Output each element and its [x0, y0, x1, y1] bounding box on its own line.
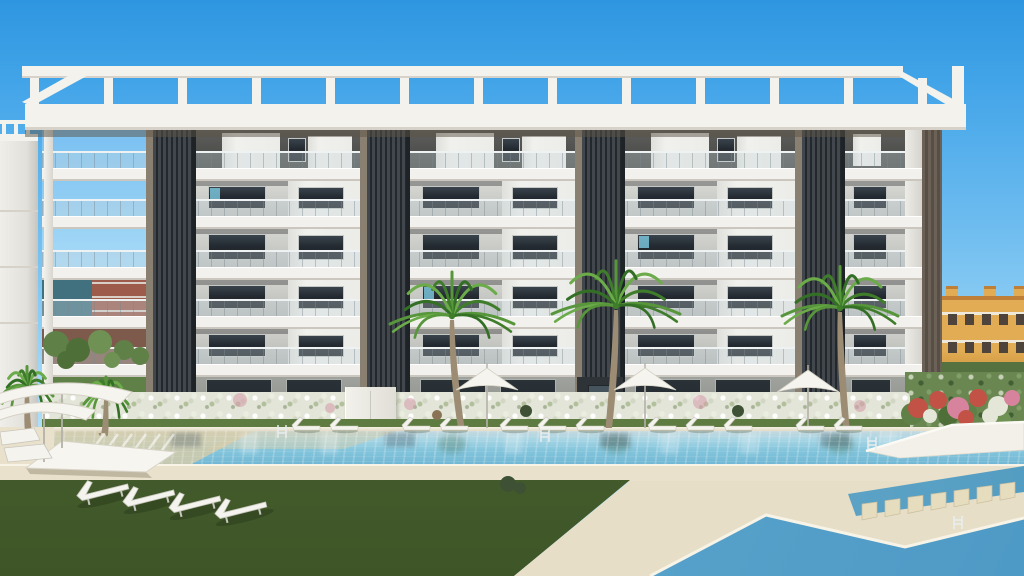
- lounger-body: [686, 417, 714, 430]
- left-garden-bush: [104, 352, 120, 368]
- pool-ladder: [954, 516, 962, 529]
- stepping-stone: [931, 492, 946, 510]
- pergola-brace-left: [22, 67, 94, 106]
- foreground-pool-coping: [650, 515, 1024, 576]
- stepping-stone: [885, 499, 900, 517]
- stepping-stone: [1000, 482, 1015, 500]
- hedge-flower-tint: [854, 400, 866, 412]
- sun-lounger: [648, 417, 676, 433]
- palm-tree: [782, 267, 898, 428]
- palm-crown-center: [613, 303, 619, 309]
- parasol: [614, 363, 676, 428]
- lounger-body: [724, 417, 752, 430]
- palm-trunk: [99, 400, 109, 437]
- stepping-stone: [977, 486, 992, 504]
- palm-trunk: [838, 312, 850, 428]
- right-garden-flower: [982, 408, 998, 424]
- corner-parasol-canopy: [0, 402, 96, 420]
- sun-lounger-foreground: [210, 488, 275, 529]
- sun-lounger: [292, 417, 320, 433]
- palm-crown-center: [837, 305, 843, 311]
- hedge-flower-tint: [404, 398, 416, 410]
- right-garden-flower: [923, 409, 937, 423]
- hedge-flower-tint: [693, 395, 707, 409]
- sun-lounger: [724, 417, 752, 433]
- lounger-body: [576, 417, 604, 430]
- parasol: [777, 365, 839, 430]
- lounger-body: [402, 417, 430, 430]
- sun-lounger: [538, 417, 566, 433]
- pergola-brace-right: [884, 67, 962, 108]
- topiary-ball: [732, 405, 744, 417]
- sun-lounger: [402, 417, 430, 433]
- left-garden-bush: [57, 351, 75, 369]
- stepping-stone: [954, 489, 969, 507]
- right-garden-flower: [1004, 390, 1020, 406]
- right-garden-flower: [929, 391, 947, 409]
- lawn-edge-bush: [500, 476, 516, 492]
- lounger-body: [538, 417, 566, 430]
- lounger-body: [648, 417, 676, 430]
- sun-lounger: [576, 417, 604, 433]
- palm-trunk: [450, 320, 465, 428]
- sun-lounger: [796, 417, 824, 433]
- pool-ladder: [278, 425, 286, 438]
- lounger-body: [330, 417, 358, 430]
- scene-overlay: [0, 0, 1024, 576]
- hedge-flower-tint: [325, 403, 335, 413]
- left-garden-bush: [131, 347, 149, 365]
- lawn-edge-bush: [514, 482, 526, 494]
- corner-lounger: [0, 428, 40, 445]
- lounger-body: [500, 417, 528, 430]
- hedge-flower-tint: [233, 393, 247, 407]
- lounger-body: [292, 417, 320, 430]
- sun-lounger: [330, 417, 358, 433]
- palm-trunk: [606, 310, 619, 428]
- scene: [0, 0, 1024, 576]
- right-garden-flower: [969, 389, 987, 407]
- wicker-basket: [432, 410, 442, 420]
- left-garden-bush: [88, 330, 112, 354]
- sun-lounger: [500, 417, 528, 433]
- stepping-stone: [908, 495, 923, 513]
- palm-crown-center: [449, 313, 455, 319]
- sun-lounger: [686, 417, 714, 433]
- stepping-stone: [862, 502, 877, 520]
- palm-tree: [552, 261, 680, 428]
- topiary-ball: [520, 405, 532, 417]
- lounger-body: [796, 417, 824, 430]
